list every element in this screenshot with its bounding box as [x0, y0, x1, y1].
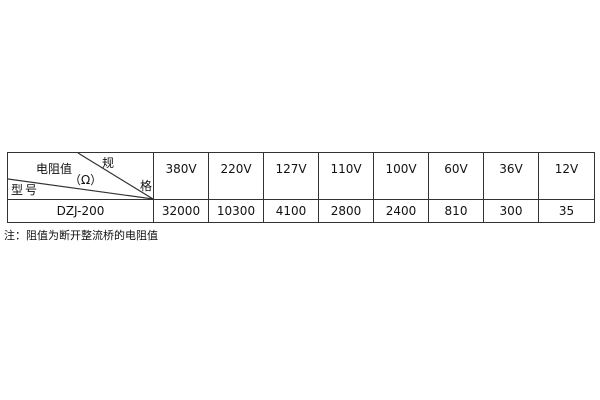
resistance-value-220v: 10300: [208, 200, 263, 222]
voltage-header-60v: 60V: [428, 153, 483, 199]
model-cell: DZJ-200: [8, 200, 153, 222]
corner-label-spec-top: 规: [102, 157, 114, 170]
voltage-header-12v: 12V: [538, 153, 594, 199]
corner-label-resistance: 电阻值: [36, 163, 72, 176]
corner-label-model: 型号: [11, 184, 39, 197]
resistance-value-100v: 2400: [373, 200, 428, 222]
table-header-row: 规 格 电阻值 （Ω） 型号 380V 220V 127V 110V 100V …: [8, 153, 594, 199]
resistance-value-36v: 300: [483, 200, 538, 222]
table-corner-cell: 规 格 电阻值 （Ω） 型号: [8, 153, 153, 199]
voltage-header-100v: 100V: [373, 153, 428, 199]
voltage-header-380v: 380V: [153, 153, 208, 199]
voltage-header-110v: 110V: [318, 153, 373, 199]
resistance-value-110v: 2800: [318, 200, 373, 222]
page: 规 格 电阻值 （Ω） 型号 380V 220V 127V 110V 100V …: [0, 0, 600, 400]
voltage-header-220v: 220V: [208, 153, 263, 199]
voltage-header-127v: 127V: [263, 153, 318, 199]
resistance-value-127v: 4100: [263, 200, 318, 222]
resistance-value-60v: 810: [428, 200, 483, 222]
resistance-value-12v: 35: [538, 200, 594, 222]
corner-label-unit: （Ω）: [69, 174, 102, 187]
voltage-header-36v: 36V: [483, 153, 538, 199]
table-data-row: DZJ-200 32000 10300 4100 2800 2400 810 3…: [8, 199, 594, 222]
spec-table: 规 格 电阻值 （Ω） 型号 380V 220V 127V 110V 100V …: [7, 152, 595, 223]
footnote: 注：阻值为断开整流桥的电阻值: [4, 229, 158, 243]
corner-label-spec-bottom: 格: [140, 180, 152, 193]
resistance-value-380v: 32000: [153, 200, 208, 222]
